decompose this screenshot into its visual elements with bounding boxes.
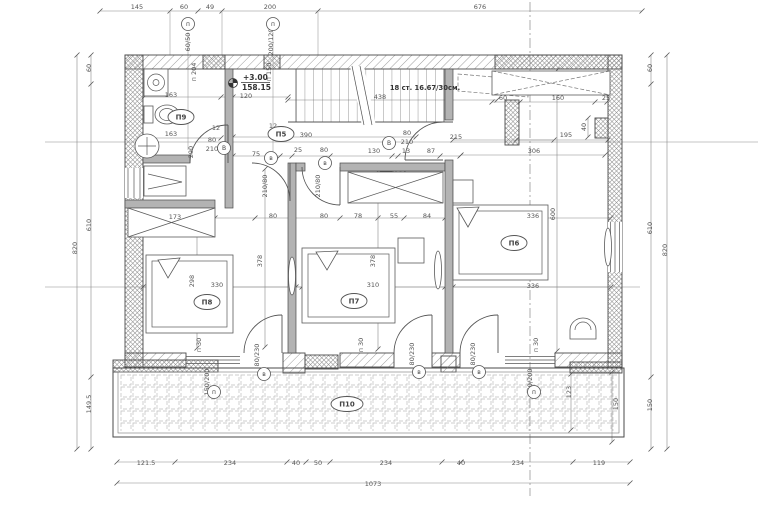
tag-letter: п	[186, 21, 190, 28]
dimension-label: 610	[646, 222, 654, 234]
dimension-label: 60/50	[184, 33, 192, 52]
radiator-p6-wall	[605, 228, 612, 266]
room-label-П7: П7	[341, 294, 367, 309]
opening-tag: в	[413, 366, 426, 379]
floor-plan-page: +3.00 158.15 18 ст. 16.67/30см. 14560492…	[0, 0, 764, 510]
room-label-text: П10	[339, 401, 355, 409]
nightstand-p6	[453, 180, 473, 203]
dimension-label: 820	[661, 244, 669, 256]
dimension-label: 80	[208, 136, 216, 144]
dimension-label: 390	[300, 131, 312, 139]
dimension-label: 80	[403, 129, 411, 137]
room-label-text: П9	[176, 114, 187, 122]
dimension-label: 330	[211, 281, 223, 289]
nightstand-p7	[398, 238, 424, 263]
room-label-text: П8	[202, 299, 213, 307]
dimension-label: 40	[292, 459, 300, 467]
tag-letter: в	[262, 371, 266, 378]
dimension-label: 80/230	[469, 343, 477, 366]
wardrobe-p6	[492, 71, 610, 95]
door-p6-terrace	[460, 315, 498, 353]
dimension-label: 121.5	[137, 459, 156, 467]
dimension-label: п 30	[532, 338, 540, 353]
dimension-label: 200	[264, 3, 276, 11]
dimension-label: 150	[612, 398, 620, 410]
bed-p7	[302, 248, 395, 323]
opening-tag: в	[265, 152, 278, 165]
dimension-label: 50	[314, 459, 322, 467]
tag-letter: В	[387, 140, 391, 147]
dimension-label: 210	[206, 145, 218, 153]
opening-tag: В	[383, 137, 396, 150]
room-label-П10: П10	[331, 397, 363, 412]
dimension-label: 149.5	[85, 395, 93, 414]
dimension-label: 78	[354, 212, 362, 220]
door-p8-terrace	[244, 315, 282, 353]
room-label-П9: П9	[168, 110, 194, 125]
dimension-label: 25	[602, 94, 610, 102]
tag-letter: п	[271, 21, 275, 28]
dimension-label: 60	[646, 64, 654, 72]
dimension-label: 120	[240, 92, 252, 100]
dimension-label: 12	[212, 124, 220, 132]
room-label-П8: П8	[194, 295, 220, 310]
dimension-label: 80/230	[253, 344, 261, 367]
dimension-label: 25	[294, 146, 302, 154]
dimension-label: 40	[457, 459, 465, 467]
sink	[135, 134, 159, 158]
dimension-label: п 204	[190, 63, 198, 82]
dimension-label: 234	[512, 459, 524, 467]
tag-letter: п	[212, 389, 216, 396]
dimension-label: 84	[423, 212, 431, 220]
door-p8-entry	[252, 163, 290, 201]
dimension-label: 49	[206, 3, 214, 11]
dimension-label: 150	[646, 399, 654, 411]
dimension-label: 336	[527, 212, 539, 220]
room-label-П5: П5	[268, 127, 294, 142]
shower	[144, 166, 186, 196]
bed-p8	[146, 255, 233, 333]
dimension-label: 75	[252, 150, 260, 158]
dimension-label: 163	[165, 130, 177, 138]
tag-letter: в	[477, 369, 481, 376]
dimension-label: 130	[368, 147, 380, 155]
dimension-label: 145	[131, 3, 143, 11]
radiator-p8-wall	[289, 257, 296, 295]
elevation-absolute: 158.15	[242, 83, 271, 92]
dimension-label: 195	[560, 131, 572, 139]
room-label-text: П6	[509, 240, 520, 248]
opening-tag: п	[208, 386, 221, 399]
dimension-label: 40	[580, 123, 588, 131]
dimension-label: 87	[427, 147, 435, 155]
tag-letter: в	[417, 369, 421, 376]
dimension-label: 80	[320, 212, 328, 220]
dimension-label: 80	[269, 212, 277, 220]
dimension-label: 60	[499, 94, 507, 102]
dimension-label: 438	[374, 93, 386, 101]
dimension-label: 298	[188, 275, 196, 287]
tag-letter: п	[532, 389, 536, 396]
dimension-label: 600	[549, 208, 557, 220]
dimension-label: 80/230	[408, 343, 416, 366]
opening-tag: в	[473, 366, 486, 379]
dimension-label: 123	[565, 386, 573, 398]
dimension-label: 676	[474, 3, 486, 11]
opening-tag: п	[182, 18, 195, 31]
armchair	[570, 318, 596, 339]
dimension-label: 55	[390, 212, 398, 220]
dimension-label: 163	[165, 91, 177, 99]
dimension-label: 13	[402, 147, 410, 155]
dimension-label: 234	[380, 459, 392, 467]
dimension-label: 234	[224, 459, 236, 467]
dimension-label: 306	[528, 147, 540, 155]
dimension-label: 290	[187, 146, 195, 158]
room-label-text: П5	[276, 131, 287, 139]
room-label-text: П7	[349, 298, 360, 306]
dimension-label: п 150	[265, 63, 273, 82]
window-left-wall	[125, 168, 143, 198]
dimension-label: п 30	[357, 338, 365, 353]
terrace	[113, 368, 624, 437]
dimension-label: 378	[369, 255, 377, 267]
dimension-label: 119	[593, 459, 605, 467]
tag-letter: в	[323, 160, 327, 167]
dimension-label: 1073	[365, 480, 382, 488]
dimension-label: 200/120	[267, 28, 275, 55]
dimension-label: 210/80	[261, 175, 269, 198]
dimension-label: 210/80	[314, 175, 322, 198]
dimension-label: 610	[85, 219, 93, 231]
dimension-label: 310	[367, 281, 379, 289]
opening-tag: В	[218, 142, 231, 155]
wardrobe-p7	[348, 172, 443, 203]
dimension-label: п 30	[195, 338, 203, 353]
dimension-label: 210	[401, 138, 413, 146]
floor-plan-svg: +3.00 158.15 18 ст. 16.67/30см. 14560492…	[0, 0, 764, 510]
radiator-p7-wall	[435, 251, 442, 289]
stairs-note: 18 ст. 16.67/30см.	[390, 84, 460, 92]
opening-tag: п	[267, 18, 280, 31]
dimension-label: 60	[85, 64, 93, 72]
dimension-label: 820	[71, 242, 79, 254]
opening-tag: п	[528, 386, 541, 399]
room-label-П6: П6	[501, 236, 527, 251]
dimension-label: 378	[256, 255, 264, 267]
tag-letter: В	[222, 145, 226, 152]
opening-tag: в	[319, 157, 332, 170]
opening-tag: в	[258, 368, 271, 381]
dimension-label: 336	[527, 282, 539, 290]
tag-letter: в	[269, 155, 273, 162]
dimension-label: 80	[320, 146, 328, 154]
dimension-label: 215	[450, 133, 462, 141]
dimension-label: 173	[169, 213, 181, 221]
dimension-label: 160	[552, 94, 564, 102]
dimension-label: 60	[180, 3, 188, 11]
